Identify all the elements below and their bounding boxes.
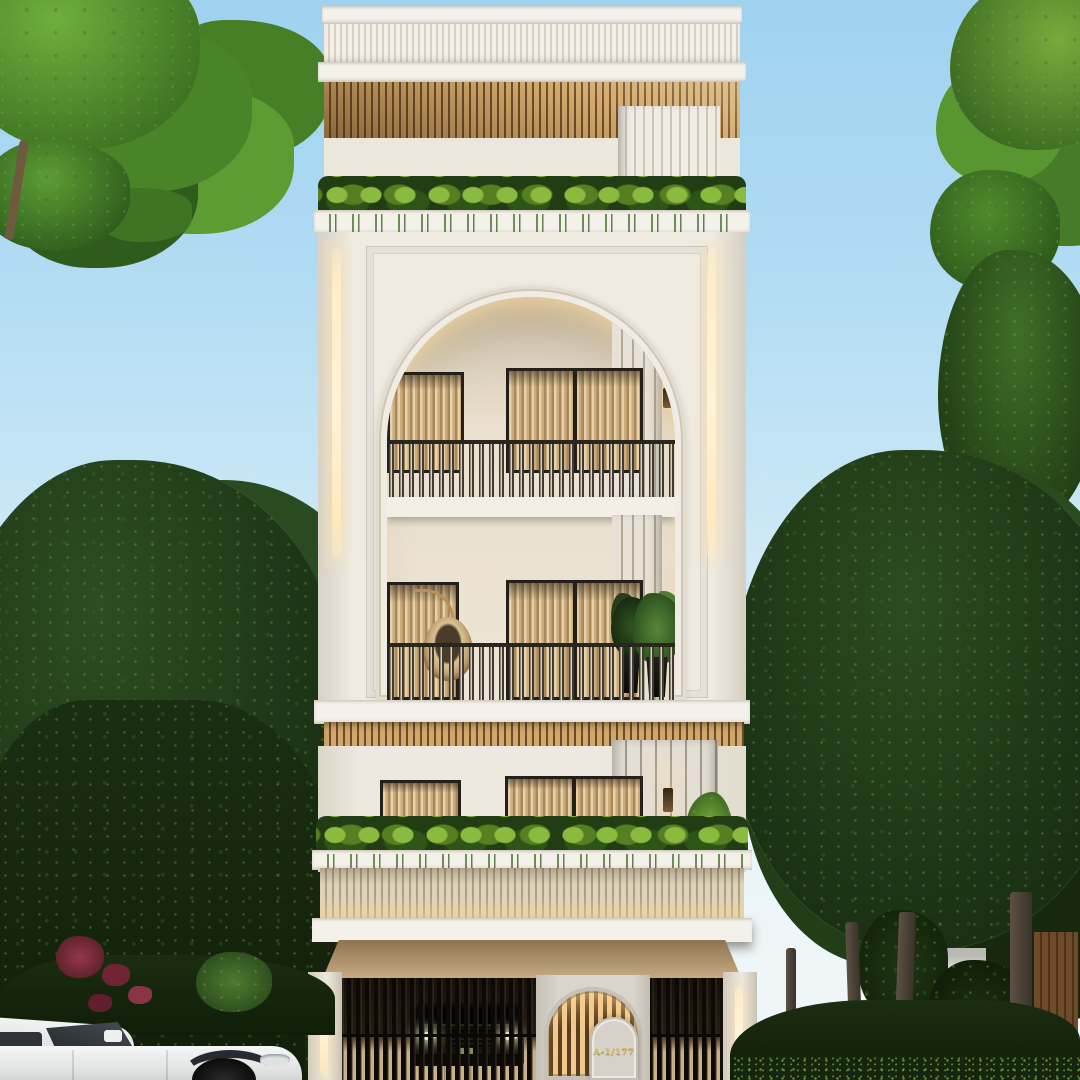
third-floor-sconce	[663, 788, 673, 812]
red-flower-cluster	[56, 936, 104, 978]
grand-arch-opening	[387, 297, 675, 700]
porch-soffit	[322, 940, 742, 980]
led-strip-left	[332, 248, 341, 558]
white-suv-door-line	[72, 1050, 74, 1080]
gate-left	[338, 978, 536, 1080]
crown-cornice	[318, 62, 746, 82]
gate-left-rail	[338, 1034, 536, 1037]
white-suv	[0, 1006, 306, 1080]
crown-top-molding	[322, 6, 742, 24]
arch-section-cornice	[314, 700, 750, 724]
gate-right	[648, 978, 728, 1080]
upper-balcony-sconce	[663, 388, 672, 408]
led-strip-right	[707, 248, 716, 558]
bright-leaves-left	[196, 952, 272, 1012]
hedge-right	[733, 1056, 1080, 1080]
white-suv-door-line-2	[166, 1050, 168, 1080]
address-plaque: A-1/177	[590, 1017, 638, 1080]
gate-right-rail	[648, 1034, 728, 1037]
scene: A-1/177	[0, 0, 1080, 1080]
parapet-base-molding	[312, 918, 752, 942]
crown-ribbed-band	[324, 24, 740, 64]
upper-balcony-slab	[387, 497, 675, 517]
parapet-backlit-slats	[320, 868, 744, 922]
white-suv-headlight	[260, 1054, 290, 1066]
address-plaque-text: A-1/177	[590, 1047, 638, 1057]
entry-portal: A-1/177	[536, 975, 650, 1080]
building-facade: A-1/177	[0, 0, 1080, 1080]
white-suv-mirror	[104, 1030, 122, 1042]
lower-balcony-railing	[387, 643, 675, 700]
